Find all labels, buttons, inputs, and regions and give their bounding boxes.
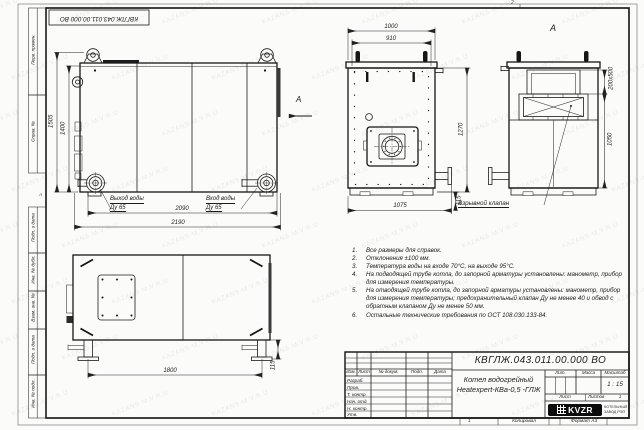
zone-number-top: 2 bbox=[511, 1, 514, 7]
margin-label-inv-podl: Инв. № подл. bbox=[30, 364, 35, 424]
note-item: 6.Остальные технические требования по ОС… bbox=[352, 312, 626, 320]
kvzr-logo-pattern-icon bbox=[557, 405, 566, 414]
tb-col-doc: № докум. bbox=[371, 370, 406, 375]
note-item: 1.Все размеры для справок. bbox=[352, 247, 626, 255]
dim-front-width-inner: 910 bbox=[376, 36, 406, 43]
note-item: 4.На подводящей трубе котла, до запорной… bbox=[352, 271, 626, 287]
dim-front-width-top: 1000 bbox=[376, 24, 406, 31]
tb-company-line2: ЗАВОД РЭП bbox=[604, 410, 630, 414]
dim-bottom-legs-span: 1800 bbox=[155, 368, 185, 375]
footer-zone-number: 1 bbox=[468, 419, 471, 424]
tb-title-line1: Котел водогрейный bbox=[452, 376, 545, 384]
note-item: 5.На отводящей трубе котла, до запорной … bbox=[352, 287, 626, 311]
drawing-sheet: КВГЛЖ.043.011.00.000 ВО Перв. примен. Сп… bbox=[0, 0, 644, 430]
dim-viewa-duct: 200х500 bbox=[609, 60, 616, 96]
tb-col-izm: Изм. bbox=[345, 370, 357, 375]
dim-front-height: 1270 bbox=[459, 114, 466, 144]
tb-mass-label: Масса bbox=[576, 371, 601, 376]
view-a-title: А bbox=[550, 24, 556, 34]
tb-company-line1: КОТЕЛЬНЫЙ bbox=[604, 405, 630, 409]
tb-sheet-label: Лист bbox=[545, 395, 585, 400]
tb-doc-number: КВГЛЖ.043.011.00.000 ВО bbox=[452, 355, 629, 366]
tb-title-line2: Heatexpert-КВа-0,5 -ГЛЖ bbox=[452, 386, 545, 394]
footer-format-label: Формат А3 bbox=[563, 419, 605, 424]
dim-front-width-bottom: 1075 bbox=[385, 203, 415, 210]
view-a-linework bbox=[489, 51, 608, 205]
tb-sheets-label: Листов bbox=[588, 395, 604, 400]
label-water-inlet: Вход воды bbox=[206, 196, 235, 203]
dim-side-height-total: 1505 bbox=[49, 106, 56, 136]
dim-viewa-height: 1050 bbox=[608, 124, 615, 154]
tb-col-list: Лист bbox=[357, 370, 371, 375]
margin-label-perv-primen: Перв. примен. bbox=[30, 19, 35, 79]
dim-side-height-body: 1400 bbox=[61, 113, 68, 143]
tb-row-nkontr: Н. контр. bbox=[347, 406, 368, 411]
label-water-outlet: Выход воды bbox=[110, 196, 144, 203]
tb-col-podp: Подп. bbox=[406, 370, 428, 375]
technical-notes: 1.Все размеры для справок. 2.Отклонения … bbox=[352, 247, 626, 320]
bottom-view-linework bbox=[67, 255, 282, 379]
front-view-linework bbox=[346, 28, 471, 215]
footer-copied-label: Копировал bbox=[503, 419, 545, 424]
dim-side-width-inner: 2090 bbox=[167, 206, 197, 213]
kvzr-logo: KVZR bbox=[548, 404, 602, 417]
tb-row-tkontr: Т. контр. bbox=[347, 392, 367, 397]
label-water-outlet-dn: Ду 65 bbox=[110, 205, 126, 212]
dim-bottom-foot-height: 115 bbox=[271, 350, 278, 380]
kvzr-logo-text: KVZR bbox=[568, 405, 593, 415]
margin-label-sprav-no: Справ. № bbox=[30, 102, 35, 162]
side-view-linework bbox=[54, 49, 312, 231]
tb-scale-label: Масштаб bbox=[601, 371, 629, 376]
tb-row-utv: Утв. bbox=[347, 412, 357, 417]
doc-number-stamp: КВГЛЖ.043.011.00.000 ВО bbox=[51, 15, 147, 22]
label-water-inlet-dn: Ду 65 bbox=[206, 205, 222, 212]
tb-sheets-value: 1 bbox=[615, 395, 625, 400]
zone-letter-a: А bbox=[39, 193, 42, 198]
tb-col-data: Дата bbox=[428, 370, 452, 375]
dim-side-width-total: 2190 bbox=[163, 220, 193, 227]
tb-lit-label: Лит. bbox=[545, 371, 576, 376]
tb-row-prov: Пров. bbox=[347, 385, 359, 390]
note-item: 3.Температура воды на входе 70°С, на вых… bbox=[352, 263, 626, 271]
label-explosion-valve: Взрывной клапан bbox=[458, 201, 509, 208]
note-item: 2.Отклонения ±100 мм. bbox=[352, 255, 626, 263]
tb-row-nachotd: Нач. отд. bbox=[347, 399, 368, 404]
tb-scale-value: 1 : 15 bbox=[601, 382, 629, 389]
view-direction-label: А bbox=[296, 96, 301, 105]
tb-row-razrab: Разраб. bbox=[347, 378, 364, 383]
